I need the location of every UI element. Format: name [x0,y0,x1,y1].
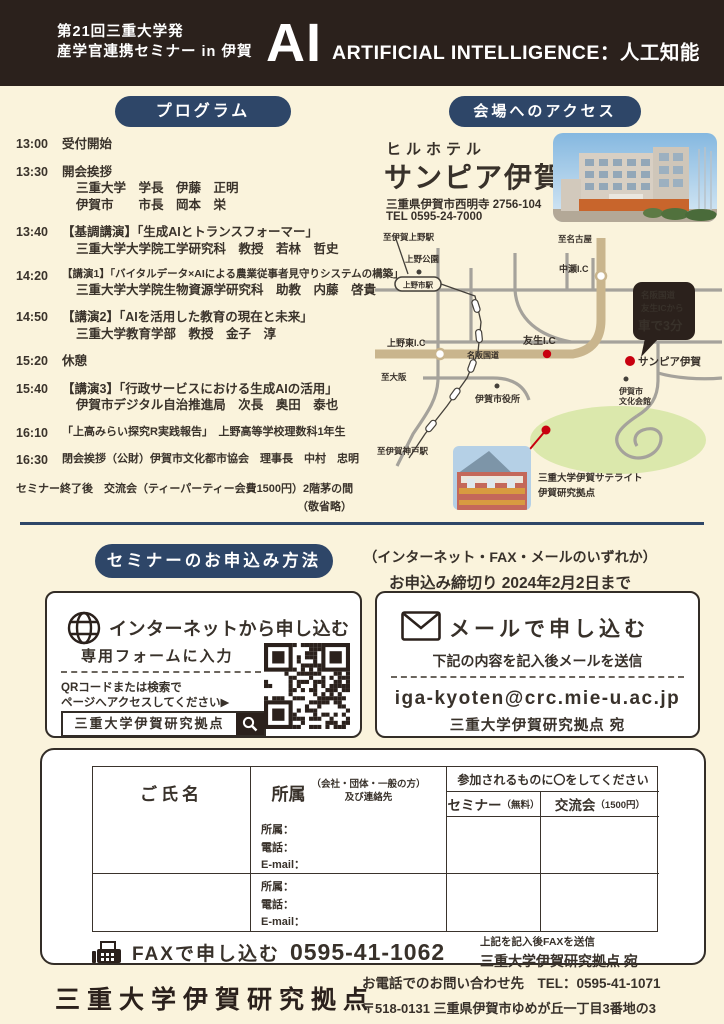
map-uenoshi-station-label: 上野市駅 [403,280,433,290]
ai-logo: AI [266,12,322,74]
internet-box: インターネットから申し込む 専用フォームに入力 QRコードまたは検索で ページへ… [45,591,362,738]
map-culture-hall-label2: 文化会館 [619,396,651,406]
ai-subtitle: ARTIFICIAL INTELLIGENCE：人工知能 [332,36,700,65]
map-tomono-ic-marker [543,350,551,358]
map-to-igakambe-label: 至伊賀神戸駅 [377,446,429,456]
apply-notes: （インターネット・FAX・メールのいずれか） お申込み締切り 2024年2月2日… [348,547,672,593]
field-affiliation: 所属： [261,822,305,840]
search-keyword: 三重大学伊賀研究拠点 [63,713,236,735]
mail-box: メールで申し込む 下記の内容を記入後メールを送信 iga-kyoten@crc.… [375,591,700,738]
seminar-check-cell [447,817,541,874]
hotel-tel: TEL 0595-24-7000 [386,211,482,223]
search-box: 三重大学伊賀研究拠点 [61,711,266,737]
field-email: E-mail： [261,857,305,875]
program-time: 13:40 [16,224,62,257]
fax-row: FAXで申し込む 0595-41-1062 上記を記入後FAXを送信 三重大学伊… [92,934,658,971]
seminar-check-cell [447,874,541,931]
map-to-nagoya-label: 至名古屋 [558,234,593,244]
program-time: 14:20 [16,268,62,298]
affiliation-label: 所属 [271,780,305,805]
satellite-photo [453,446,531,510]
affiliation-note: （会社・団体・一般の方） 及び連絡先 [311,779,425,805]
field-email: E-mail： [261,914,305,932]
bubble-line3: 車で3分 [638,318,683,333]
map-ueno-higashi-ic-marker [435,349,445,359]
seminar-series: 第21回三重大学発 産学官連携セミナー in 伊賀 [57,22,252,62]
affiliation-entry-cell: 所属： 電話： E-mail： [251,874,447,931]
name-entry-cell [93,817,251,874]
program-title: 開会挨拶 [62,164,374,181]
qr-note-2: ページへアクセスしてください▶ [61,694,229,710]
search-icon [241,715,259,733]
form-box: ご氏名 所属 （会社・団体・一般の方） 及び連絡先 参加されるものに〇をしてくだ… [40,748,706,965]
program-title: 【基調講演】「生成AIとトランスフォーマー」 [62,224,374,241]
qr-code [264,643,350,729]
access-map: 名阪国道 中瀬I.C 上野東I.C 友生I.C 上野市駅 至伊賀上野駅 上野公園… [375,228,722,522]
map-ueno-higashi-ic-label: 上野東I.C [387,337,426,348]
program-time: 15:20 [16,353,62,370]
map-culture-hall-label1: 伊賀市 [618,386,643,396]
map-tomono-ic-label: 友生I.C [523,334,556,347]
program-subline: 三重大学大学院生物資源学研究科 助教 内藤 啓貴 [76,282,404,299]
mail-subtitle: 下記の内容を記入後メールを送信 [377,651,698,671]
seminar-series-line1: 第21回三重大学発 [57,22,252,42]
section-divider [20,522,704,525]
fax-note-2: 三重大学伊賀研究拠点 宛 [480,951,658,971]
search-button [236,713,264,735]
mail-address: iga-kyoten@crc.mie-u.ac.jp [377,688,698,710]
program-pill: プログラム [115,96,291,127]
seminar-col-header: セミナー（無料） [447,792,541,817]
program-time: 13:00 [16,136,62,153]
hotel-name: サンピア伊賀 [384,156,564,196]
fax-number: 0595-41-1062 [290,939,445,966]
internet-subtitle: 専用フォームに入力 [81,645,234,666]
map-nakase-ic-label: 中瀬I.C [559,263,589,274]
program-item: 16:30 閉会挨拶（公財）伊賀市文化都市協会 理事長 中村 忠明 [16,452,374,469]
program-time: 15:40 [16,381,62,414]
program-title: 休憩 [62,353,374,370]
program-title: 「上高みらい探究R実践報告」 上野高等学校理数科1年生 [62,425,374,440]
map-drive-bubble: 名阪国道 友生ICから 車で3分 [633,282,695,357]
apply-method-note: （インターネット・FAX・メールのいずれか） [348,547,672,567]
honorifics-note: （敬省略） [16,498,374,514]
globe-icon [65,609,103,647]
program-title: 受付開始 [62,136,374,153]
program-subline: 三重大学教育学部 教授 金子 淳 [76,326,374,343]
map-to-osaka-label: 至大阪 [381,372,407,382]
fax-note-1: 上記を記入後FAXを送信 [480,934,658,949]
program-item: 14:20 【講演1】「バイタルデータ×AIによる農業従事者見守りシステムの構築… [16,268,374,298]
map-meihan-road-label: 名阪国道 [467,350,499,360]
internet-title: インターネットから申し込む [109,615,350,641]
program-title: 【講演1】「バイタルデータ×AIによる農業従事者見守りシステムの構築」 [62,268,404,282]
fax-label: FAXで申し込む [132,939,280,966]
program-item: 14:50 【講演2】「AIを活用した教育の現在と未来」 三重大学教育学部 教授… [16,309,374,342]
program-afterparty-note: セミナー終了後 交流会（ティーパーティー会費1500円）2階茅の間 [16,480,374,496]
mail-icon [401,611,441,641]
affiliation-entry-cell: 所属： 電話： E-mail： [251,817,447,874]
seminar-label: セミナー [447,794,501,814]
footer-tel: お電話でのお問い合わせ先 TEL：0595-41-1071 [362,972,712,992]
program-title: 【講演2】「AIを活用した教育の現在と未来」 [62,309,374,326]
map-sanpia-marker [625,356,635,366]
party-col-header: 交流会（1500円） [541,792,659,817]
program-time: 16:30 [16,452,62,469]
map-to-ueno-label: 至伊賀上野駅 [383,232,435,242]
field-phone: 電話： [261,840,305,858]
map-city-hall-dot [495,384,500,389]
program-subline: 伊賀市デジタル自治推進局 次長 奥田 泰也 [76,397,374,414]
program-time: 13:30 [16,164,62,214]
mail-recipient: 三重大学伊賀研究拠点 宛 [377,714,698,735]
program-item: 16:10 「上高みらい探究R実践報告」 上野高等学校理数科1年生 [16,425,374,442]
map-nakase-ic-marker [596,271,606,281]
satellite-caption-2: 伊賀研究拠点 [537,487,596,499]
map-rail-capsules [425,299,483,433]
field-phone: 電話： [261,897,305,915]
program-title: 【講演3】「行政サービスにおける生成AIの活用」 [62,381,374,398]
program-subline: 三重大学大学院工学研究科 教授 若林 哲史 [76,241,374,258]
program-list: 13:00 受付開始 13:30 開会挨拶 三重大学 学長 伊藤 正明 伊賀市 … [16,136,374,514]
name-entry-cell [93,874,251,931]
affiliation-note-2: 及び連絡先 [345,792,393,803]
program-subline: 伊賀市 市長 岡本 栄 [76,197,374,214]
application-form-table: ご氏名 所属 （会社・団体・一般の方） 及び連絡先 参加されるものに〇をしてくだ… [92,766,658,932]
bubble-line2: 友生ICから [640,303,684,313]
qr-note-1: QRコードまたは検索で [61,679,182,695]
map-ueno-park-label: 上野公園 [405,254,439,264]
program-title: 閉会挨拶（公財）伊賀市文化都市協会 理事長 中村 忠明 [62,452,374,467]
header-band: 第21回三重大学発 産学官連携セミナー in 伊賀 AI ARTIFICIAL … [0,0,724,86]
map-city-hall-label: 伊賀市役所 [474,393,520,404]
affiliation-note-1: （会社・団体・一般の方） [311,779,425,790]
satellite-caption-1: 三重大学伊賀サテライト [538,472,643,484]
program-time: 14:50 [16,309,62,342]
program-item: 13:40 【基調講演】「生成AIとトランスフォーマー」 三重大学大学院工学研究… [16,224,374,257]
dashed-divider [61,671,261,673]
program-item: 15:40 【講演3】「行政サービスにおける生成AIの活用」 伊賀市デジタル自治… [16,381,374,414]
map-sanpia-label: サンピア伊賀 [638,355,701,368]
dashed-divider [391,676,684,678]
map-culture-hall-dot [624,377,629,382]
footer-organization: 三重大学伊賀研究拠点 [55,980,375,1016]
program-item: 13:00 受付開始 [16,136,374,153]
hotel-photo [553,133,717,222]
party-check-cell [541,817,659,874]
footer-address: 〒518-0131 三重県伊賀市ゆめが丘一丁目3番地の3 [362,998,712,1017]
fax-notes: 上記を記入後FAXを送信 三重大学伊賀研究拠点 宛 [480,934,658,971]
participate-header: 参加されるものに〇をしてください [447,767,659,792]
mail-title: メールで申し込む [449,613,649,643]
flyer-page: 第21回三重大学発 産学官連携セミナー in 伊賀 AI ARTIFICIAL … [0,0,724,1024]
map-ueno-park-dot [417,270,422,275]
apply-pill: セミナーのお申込み方法 [95,544,333,578]
bubble-line1: 名阪国道 [641,290,676,300]
party-check-cell [541,874,659,931]
footer-contact: お電話でのお問い合わせ先 TEL：0595-41-1071 〒518-0131 … [362,972,712,1017]
program-time: 16:10 [16,425,62,442]
col-affiliation-header: 所属 （会社・団体・一般の方） 及び連絡先 [251,767,447,817]
hotel-address: 三重県伊賀市西明寺 2756-104 [386,196,541,212]
col-name-header: ご氏名 [93,767,251,817]
access-pill: 会場へのアクセス [449,96,641,127]
program-item: 15:20 休憩 [16,353,374,370]
program-subline: 三重大学 学長 伊藤 正明 [76,180,374,197]
field-affiliation: 所属： [261,879,305,897]
fax-icon [92,940,122,966]
seminar-fee-note: （無料） [501,797,539,811]
seminar-series-line2: 産学官連携セミナー in 伊賀 [57,42,252,62]
party-fee-note: （1500円） [595,797,645,811]
program-item: 13:30 開会挨拶 三重大学 学長 伊藤 正明 伊賀市 市長 岡本 栄 [16,164,374,214]
apply-deadline: お申込み締切り 2024年2月2日まで [348,571,672,593]
party-label: 交流会 [555,794,596,814]
